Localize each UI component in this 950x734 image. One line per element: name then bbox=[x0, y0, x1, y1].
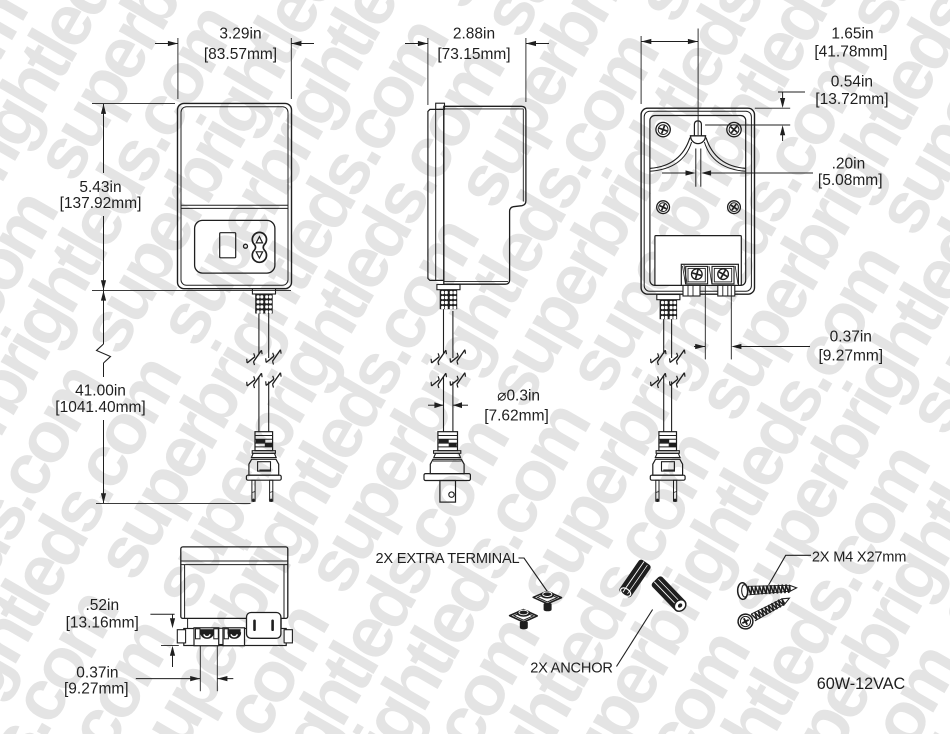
svg-text:0.54in: 0.54in bbox=[831, 74, 873, 91]
svg-text:1.65in: 1.65in bbox=[831, 26, 873, 43]
svg-text:41.00in: 41.00in bbox=[75, 383, 126, 400]
svg-text:2X EXTRA TERMINAL: 2X EXTRA TERMINAL bbox=[376, 551, 520, 567]
svg-text:3.29in: 3.29in bbox=[219, 26, 261, 43]
svg-text:.52in: .52in bbox=[85, 597, 119, 614]
svg-text:.20in: .20in bbox=[832, 155, 866, 172]
svg-text:0.37in: 0.37in bbox=[830, 329, 872, 346]
svg-text:60W-12VAC: 60W-12VAC bbox=[817, 675, 906, 693]
svg-text:[9.27mm]: [9.27mm] bbox=[64, 680, 129, 697]
svg-text:0.37in: 0.37in bbox=[76, 664, 118, 681]
svg-text:[5.08mm]: [5.08mm] bbox=[818, 172, 883, 189]
svg-text:[137.92mm]: [137.92mm] bbox=[60, 195, 142, 212]
svg-text:[13.16mm]: [13.16mm] bbox=[66, 615, 139, 632]
svg-text:[13.72mm]: [13.72mm] bbox=[815, 91, 888, 108]
svg-text:2.88in: 2.88in bbox=[453, 26, 495, 43]
svg-text:2X M4 X27mm: 2X M4 X27mm bbox=[812, 550, 906, 566]
svg-text:[83.57mm]: [83.57mm] bbox=[204, 46, 277, 63]
svg-text:[73.15mm]: [73.15mm] bbox=[437, 46, 510, 63]
svg-text:[41.78mm]: [41.78mm] bbox=[814, 44, 887, 61]
svg-text:[9.27mm]: [9.27mm] bbox=[818, 348, 883, 365]
svg-text:2X ANCHOR: 2X ANCHOR bbox=[530, 661, 613, 677]
svg-text:5.43in: 5.43in bbox=[79, 179, 121, 196]
svg-text:⌀0.3in: ⌀0.3in bbox=[497, 387, 540, 404]
svg-text:[7.62mm]: [7.62mm] bbox=[484, 408, 549, 425]
svg-text:[1041.40mm]: [1041.40mm] bbox=[55, 399, 145, 416]
